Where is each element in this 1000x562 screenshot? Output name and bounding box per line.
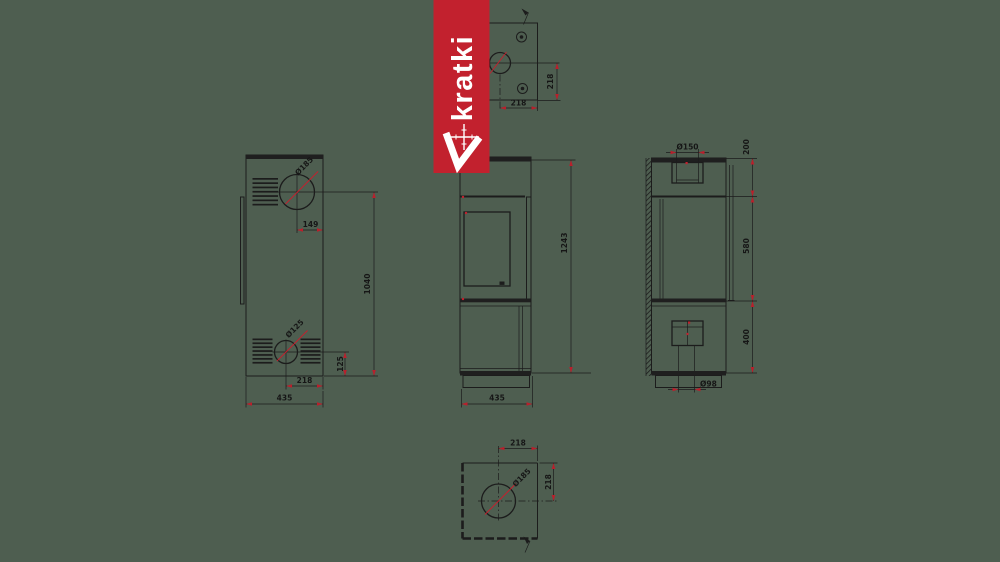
side-view: Ø150 Ø98 — [646, 139, 757, 392]
dim-bottom-offset-y: 218 — [544, 474, 553, 490]
back-view: Ø185 149 Ø125 — [241, 155, 379, 408]
dim-back-flue-offset: 149 — [303, 220, 319, 229]
dim-back-base-width: 435 — [277, 394, 293, 403]
door-latch-icon — [500, 282, 505, 285]
drawing-canvas: 218 218 Ø185 149 — [0, 0, 1000, 562]
bottom-view: Ø185 218 218 — [463, 439, 558, 553]
dim-side-air-inlet-diameter: Ø98 — [700, 380, 717, 389]
technical-drawing: 218 218 Ø185 149 — [0, 0, 1000, 562]
back-wall-hatch — [646, 158, 652, 376]
dim-bottom-opening-diameter: Ø185 — [511, 467, 533, 489]
top-view: 218 218 — [489, 9, 561, 112]
vent-slots — [253, 178, 279, 206]
dim-bottom-offset-x: 218 — [510, 439, 526, 448]
front-view: 435 1243 — [460, 157, 591, 408]
dim-back-inlet-offset: 218 — [297, 376, 313, 385]
leader-flag-icon — [522, 9, 529, 25]
air-inlet-connector — [672, 321, 703, 346]
dim-back-outlet-span: 1040 — [363, 274, 372, 295]
dim-front-base-width: 435 — [489, 394, 505, 403]
dim-front-total-height: 1243 — [560, 233, 569, 254]
door-glass — [464, 212, 510, 286]
dim-side-top-section: 200 — [742, 139, 751, 155]
base-plinth — [463, 376, 530, 388]
door-handle — [527, 197, 532, 300]
brand-wordmark: kratki — [447, 35, 479, 121]
dim-side-middle-section: 580 — [742, 238, 751, 254]
brand-banner: kratki — [434, 0, 490, 173]
flue-collar — [672, 162, 703, 183]
dim-side-flue-diameter: Ø150 — [676, 143, 698, 152]
dim-side-bottom-section: 400 — [742, 329, 751, 345]
rear-heat-shield — [241, 197, 245, 304]
dim-top-depth: 218 — [546, 74, 555, 90]
dim-top-width: 218 — [511, 99, 527, 108]
dim-back-inlet-height: 125 — [336, 356, 345, 372]
